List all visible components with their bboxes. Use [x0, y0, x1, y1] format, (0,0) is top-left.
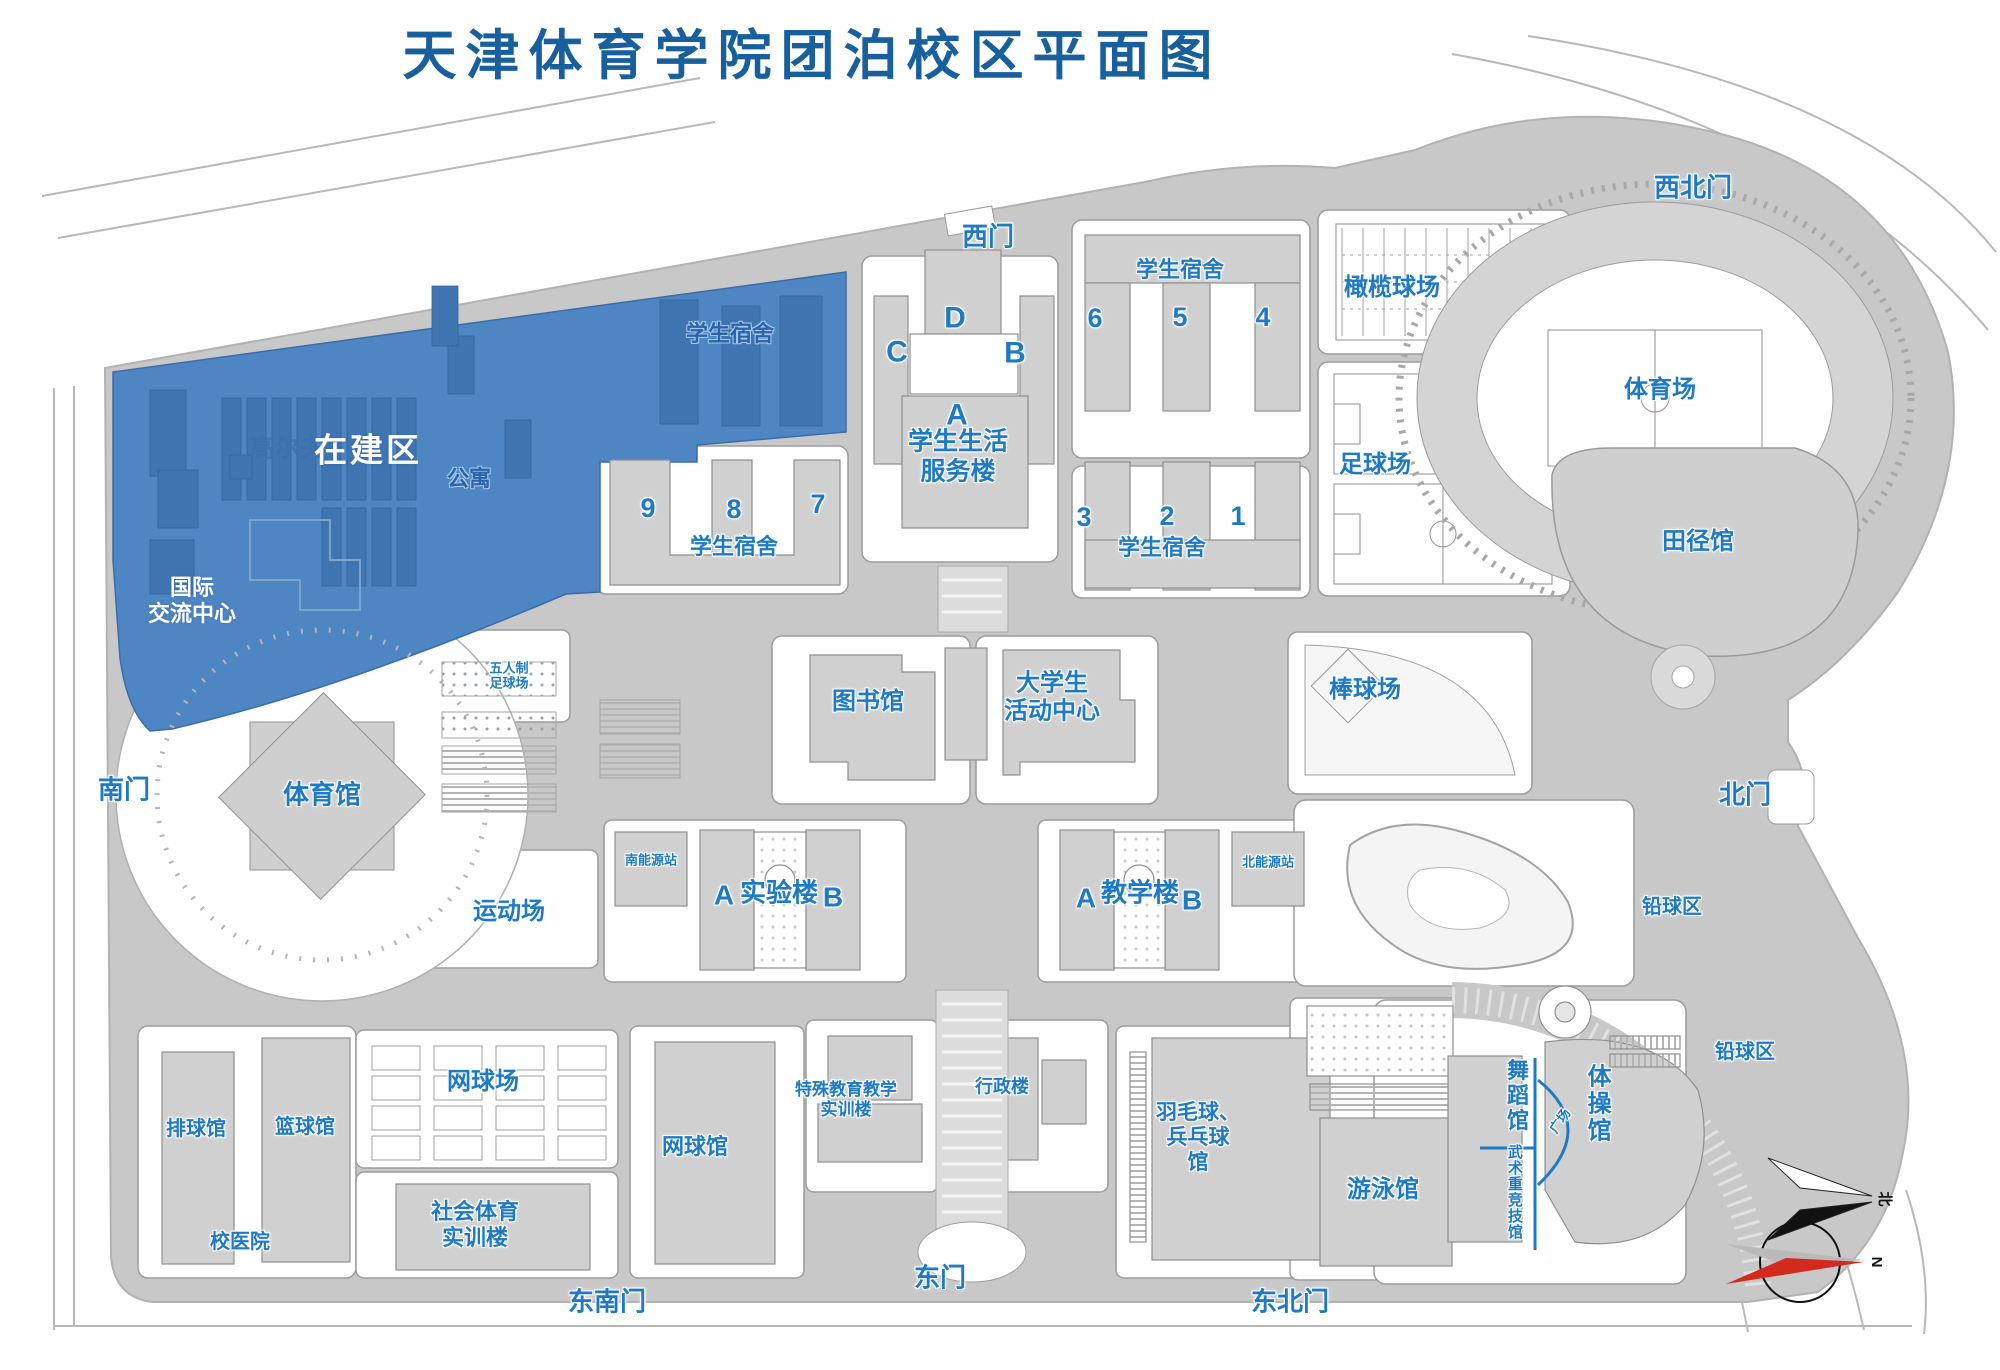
lab-wing-a: A [714, 878, 734, 911]
social-sports-label: 社会体育 实训楼 [431, 1199, 519, 1251]
athletics-hall-label: 田径馆 [1662, 528, 1734, 556]
south-energy-label: 南能源站 [625, 852, 677, 867]
dance-hall-label: 舞蹈馆 [1503, 1059, 1529, 1134]
service-wing-c: C [886, 334, 908, 369]
tennis-hall-label: 网球馆 [662, 1134, 728, 1160]
gate-south: 南门 [98, 775, 150, 806]
dorm-987-label: 学生宿舍 [690, 534, 778, 560]
construction-dorm-label: 学生宿舍 [686, 321, 774, 347]
page-title: 天津体育学院团泊校区平面图 [403, 25, 1222, 89]
dorm-2: 2 [1159, 501, 1174, 533]
hospital-label: 校医院 [210, 1231, 270, 1255]
tennis-courts-label: 网球场 [447, 1068, 519, 1096]
sports-ground-label: 运动场 [473, 898, 545, 926]
activity-center-label: 大学生 活动中心 [1004, 670, 1100, 727]
campus-map: 天津体育学院团泊校区平面图 西门 西北门 南门 北门 东门 东南门 东北门 高尔… [0, 0, 2000, 1370]
gate-northeast: 东北门 [1251, 1287, 1329, 1318]
intl-exchange-center-label: 国际 交流中心 [148, 575, 236, 627]
compass-north-char: 北 [1875, 1191, 1893, 1206]
basketball-hall-label: 篮球馆 [275, 1116, 335, 1140]
dorm-8: 8 [726, 494, 741, 526]
dorm-7: 7 [810, 489, 825, 521]
apartment-label: 公寓 [447, 466, 491, 492]
service-building-label: 学生生活 服务楼 [908, 428, 1008, 487]
dorm-1: 1 [1230, 501, 1245, 533]
service-wing-d: D [944, 300, 966, 335]
gymnastics-hall-label: 体操馆 [1582, 1064, 1610, 1145]
north-energy-label: 北能源站 [1242, 854, 1294, 869]
construction-zone-label: 在建区 [314, 432, 422, 471]
swimming-hall-label: 游泳馆 [1347, 1176, 1419, 1204]
library-label: 图书馆 [832, 688, 904, 716]
teaching-building-label: 教学楼 [1101, 878, 1179, 909]
special-education-label: 特殊教育教学 实训楼 [795, 1080, 897, 1120]
shotput-area-label-2: 铅球区 [1715, 1041, 1775, 1065]
baseball-field-label: 棒球场 [1329, 676, 1401, 704]
gate-northwest: 西北门 [1654, 173, 1732, 204]
dorm-321-label: 学生宿舍 [1118, 535, 1206, 561]
dorm-5: 5 [1172, 302, 1187, 334]
martial-arts-hall-label: 武术重竞技馆 [1505, 1144, 1523, 1240]
rugby-field-label: 橄榄球场 [1344, 274, 1440, 302]
dorm-9: 9 [640, 493, 655, 525]
stadium-label: 体育场 [1624, 376, 1696, 404]
teaching-wing-a: A [1076, 881, 1096, 914]
gate-southeast: 东南门 [568, 1287, 646, 1318]
gate-west: 西门 [962, 222, 1014, 253]
dorm-3: 3 [1076, 502, 1091, 534]
gymnasium-label: 体育馆 [283, 780, 361, 811]
dorm-6: 6 [1087, 303, 1102, 335]
admin-building-label: 行政楼 [975, 1076, 1029, 1097]
volleyball-hall-label: 排球馆 [166, 1118, 226, 1142]
dorm-654-label: 学生宿舍 [1136, 257, 1224, 283]
dorm-4: 4 [1255, 302, 1270, 334]
lab-building-label: 实验楼 [740, 878, 818, 909]
football-field-label: 足球场 [1339, 451, 1411, 479]
map-graphics [0, 0, 2000, 1370]
gate-east: 东门 [914, 1263, 966, 1294]
compass-north-letter: N [1867, 1257, 1885, 1268]
service-wing-b: B [1004, 335, 1026, 370]
five-a-side-label: 五人制 足球场 [489, 661, 528, 692]
lab-wing-b: B [823, 880, 843, 913]
badminton-hall-label: 羽毛球、 兵乓球 馆 [1156, 1101, 1240, 1175]
teaching-wing-b: B [1182, 883, 1202, 916]
gate-north: 北门 [1719, 780, 1771, 811]
shotput-area-label-1: 铅球区 [1642, 896, 1702, 920]
